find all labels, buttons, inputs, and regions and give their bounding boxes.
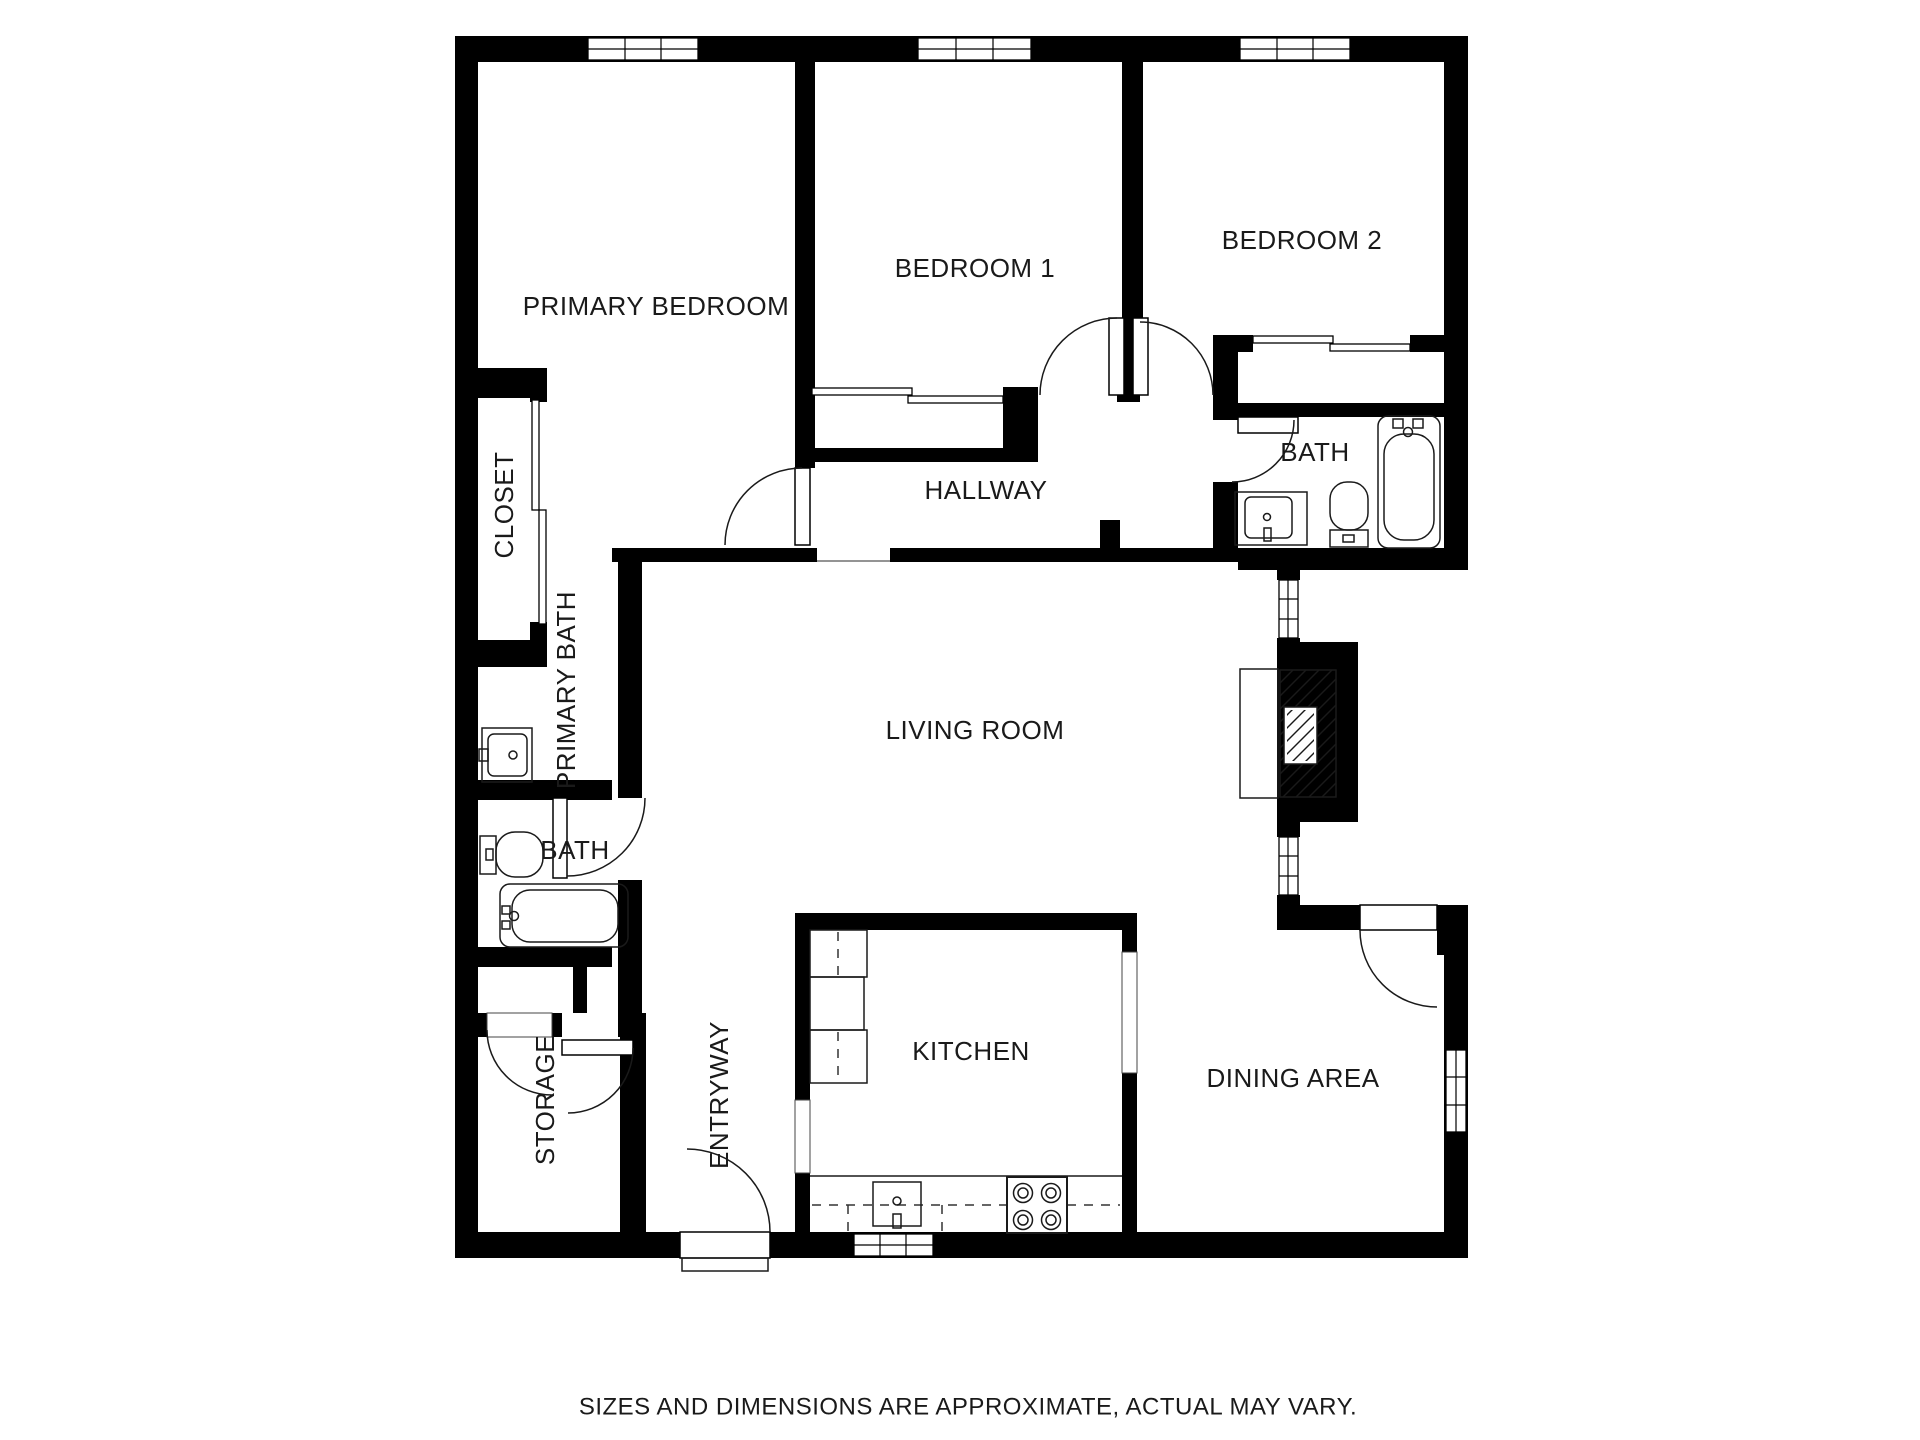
room-label-bedroom-1: BEDROOM 1 bbox=[895, 253, 1056, 283]
kitchen-counter bbox=[810, 1176, 1122, 1231]
openings bbox=[795, 561, 1137, 1173]
window-bedroom-1 bbox=[918, 38, 1031, 60]
bath-upper-tub bbox=[1378, 416, 1440, 548]
bedroom1-closet-slider bbox=[812, 388, 912, 395]
bath-upper-vanity bbox=[1235, 492, 1307, 545]
bath-lower-toilet bbox=[480, 832, 543, 877]
floor-plan: PRIMARY BEDROOM BEDROOM 1 BEDROOM 2 CLOS… bbox=[0, 0, 1920, 1440]
window-living-upper bbox=[1279, 580, 1298, 638]
kitchen-cabinets bbox=[810, 930, 867, 1083]
bath-upper-toilet bbox=[1330, 482, 1368, 547]
room-label-dining-area: DINING AREA bbox=[1206, 1063, 1379, 1093]
door-primary-bedroom bbox=[725, 468, 810, 545]
floor-plan-page: PRIMARY BEDROOM BEDROOM 1 BEDROOM 2 CLOS… bbox=[0, 0, 1920, 1440]
door-bedroom-1 bbox=[1040, 318, 1124, 395]
door-bedroom-2 bbox=[1133, 318, 1213, 395]
primary-bath-vanity bbox=[479, 728, 532, 782]
room-label-kitchen: KITCHEN bbox=[912, 1036, 1030, 1066]
fireplace-hearth bbox=[1240, 669, 1278, 798]
disclaimer-text: SIZES AND DIMENSIONS ARE APPROXIMATE, AC… bbox=[579, 1394, 1357, 1421]
bedroom2-closet-slider bbox=[1253, 336, 1333, 343]
room-label-living-room: LIVING ROOM bbox=[886, 715, 1065, 745]
room-label-bath-lower: BATH bbox=[540, 835, 609, 865]
window-primary-bedroom bbox=[588, 38, 698, 60]
primary-closet-slider bbox=[532, 400, 539, 510]
window-dining bbox=[1446, 1050, 1466, 1132]
room-label-bath-upper: BATH bbox=[1280, 437, 1349, 467]
kitchen-entry-opening bbox=[795, 1100, 810, 1173]
bath-lower-tub bbox=[500, 884, 628, 947]
room-label-closet: CLOSET bbox=[489, 451, 519, 558]
fireplace bbox=[1240, 669, 1336, 798]
room-label-entryway: ENTRYWAY bbox=[704, 1021, 734, 1169]
room-label-hallway: HALLWAY bbox=[925, 475, 1048, 505]
door-dining bbox=[1360, 905, 1437, 1007]
window-living-lower bbox=[1279, 837, 1298, 895]
room-label-primary-bath: PRIMARY BATH bbox=[551, 591, 581, 789]
window-bedroom-2 bbox=[1240, 38, 1350, 60]
kitchen-stove bbox=[1007, 1177, 1067, 1233]
room-label-bedroom-2: BEDROOM 2 bbox=[1222, 225, 1383, 255]
room-label-primary-bedroom: PRIMARY BEDROOM bbox=[523, 291, 790, 321]
kitchen-pass-through bbox=[1122, 952, 1137, 1073]
room-label-storage: STORAGE bbox=[530, 1035, 560, 1165]
window-kitchen bbox=[854, 1234, 933, 1256]
